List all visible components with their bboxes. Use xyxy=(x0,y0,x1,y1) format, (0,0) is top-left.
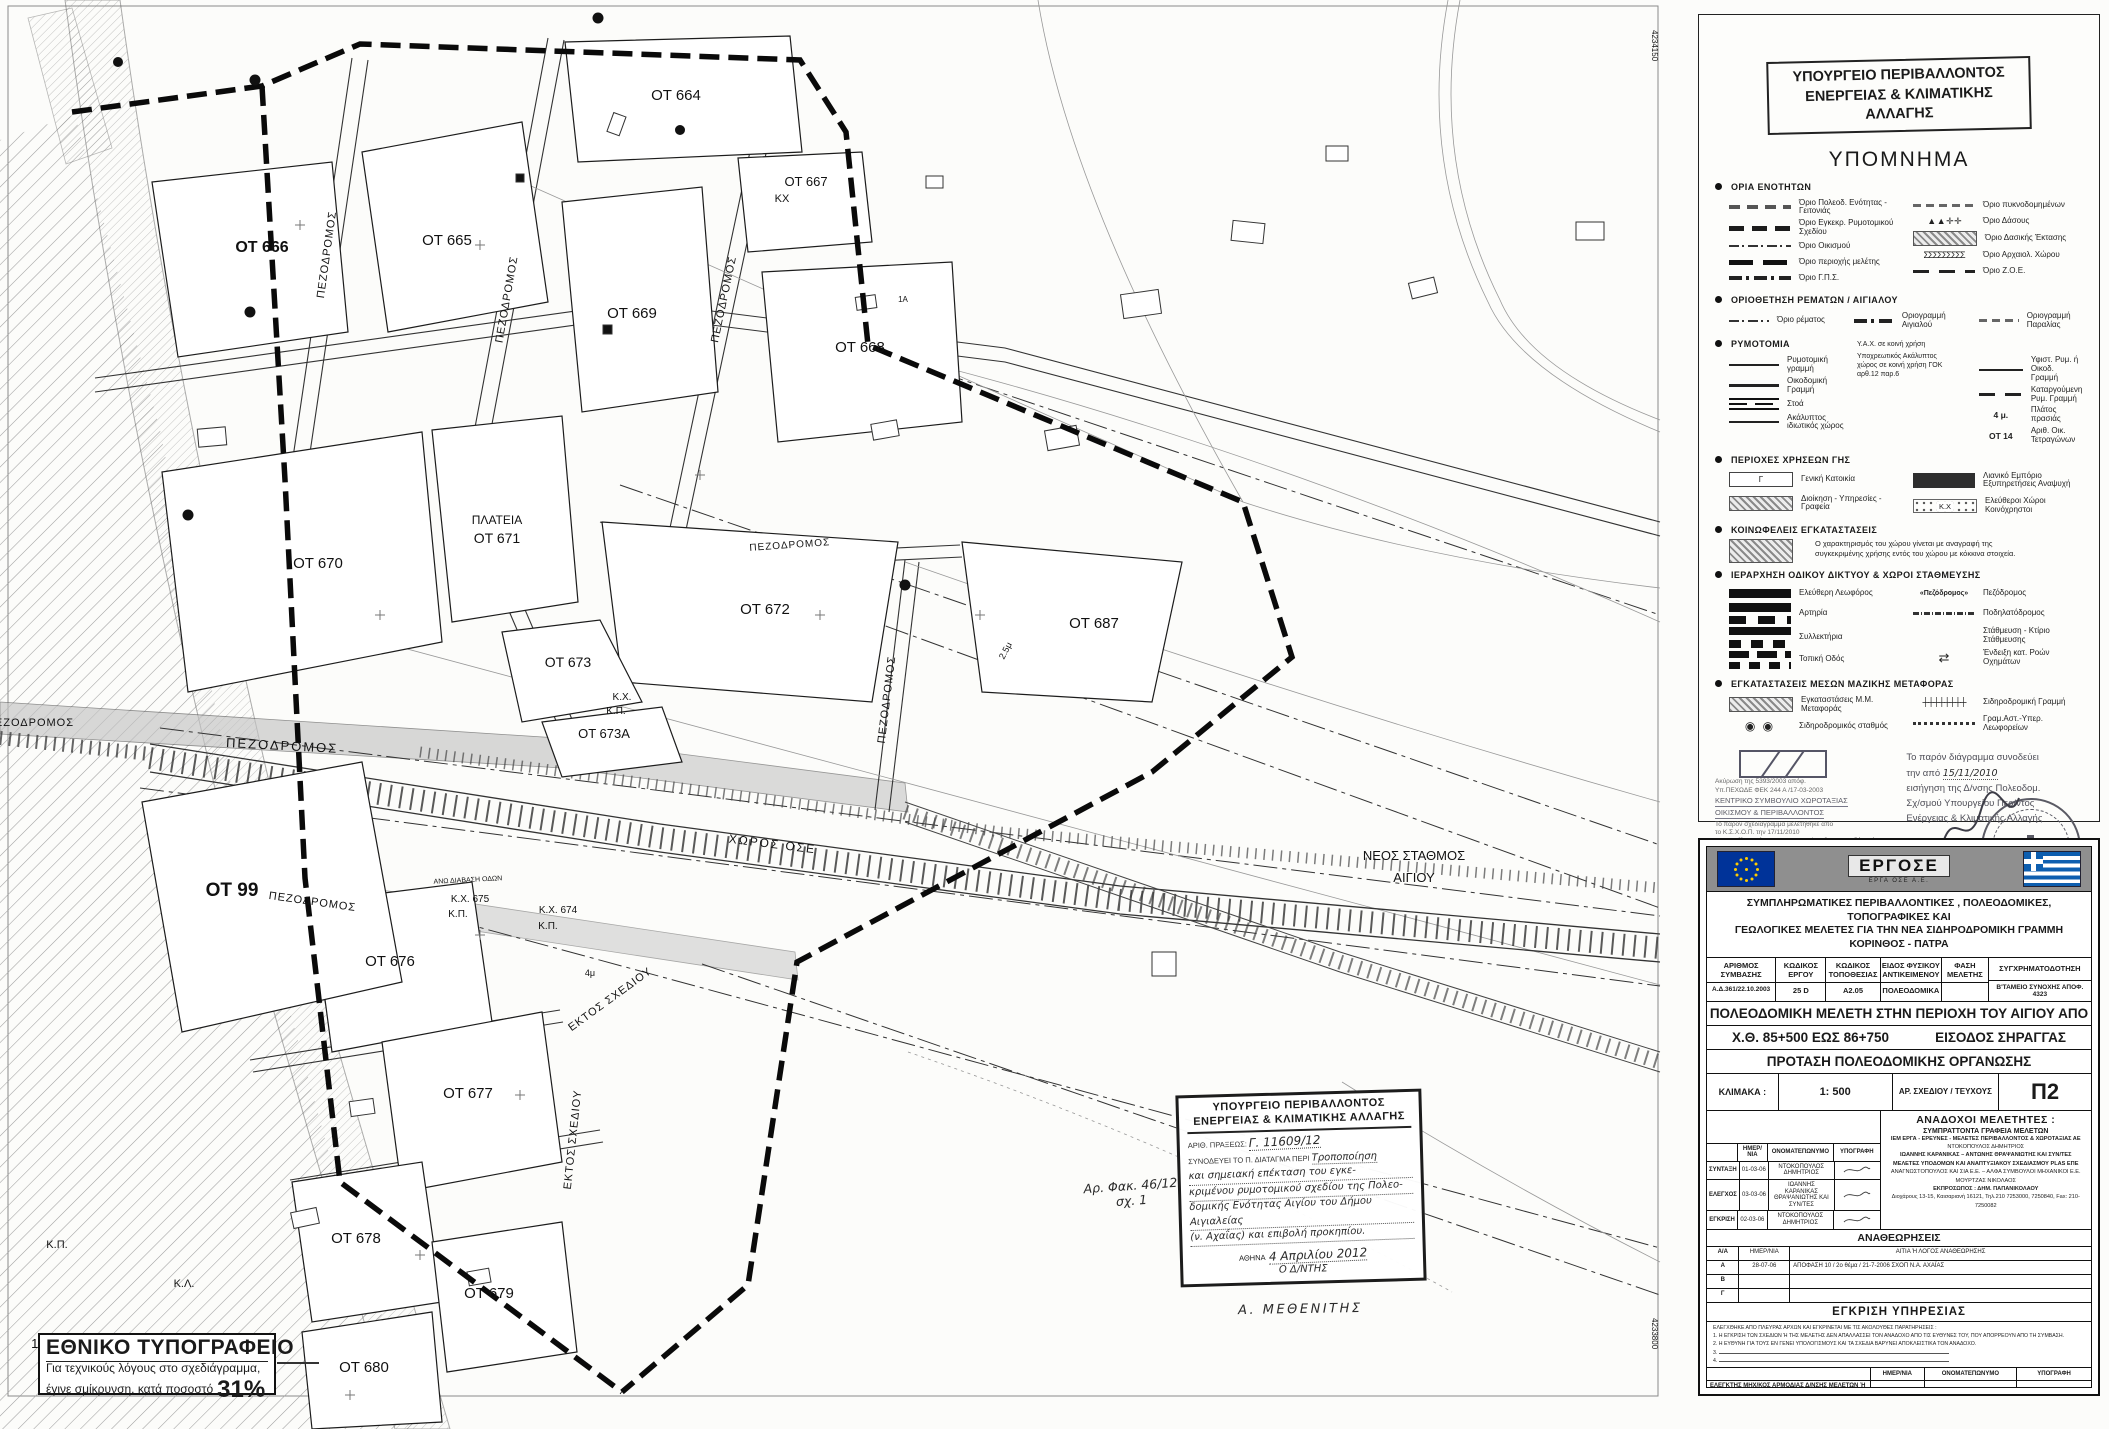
section-title: ΠΕΡΙΟΧΕΣ ΧΡΗΣΕΩΝ ΓΗΣ xyxy=(1731,455,1850,465)
legend-section-communal: ΚΟΙΝΩΦΕΛΕΙΣ ΕΓΚΑΤΑΣΤΑΣΕΙΣ Ο χαρακτηρισμό… xyxy=(1715,525,2083,563)
legend-item: Όριο Δάσους xyxy=(1983,217,2029,226)
col-value: Α.Δ.361/22.10.2003 xyxy=(1707,983,1775,1001)
legend-item: Εγκαταστάσεις Μ.Μ. Μεταφοράς xyxy=(1801,696,1899,714)
decree-subject-1: Τροποποίηση xyxy=(1312,1150,1378,1164)
legend-item: Ένδειξη κατ. Ροών Οχημάτων xyxy=(1983,649,2083,667)
appr-col-header: ΗΜΕΡ/ΝΙΑ xyxy=(1871,1368,1924,1380)
legend-item: Οικοδομική Γραμμή xyxy=(1787,377,1855,395)
eu-flag-icon xyxy=(1717,851,1775,887)
stamp-text: την από xyxy=(1906,768,1940,779)
rev-date: 28-07-06 xyxy=(1739,1261,1790,1274)
council-name2: ΟΙΚΙΣΜΟΥ & ΠΕΡΙΒΑΛΛΟΝΤΟΣ xyxy=(1715,807,1824,819)
yax-note: Υ.Α.Χ. σε κοινή χρήση xyxy=(1857,341,1947,350)
gok-note: Υποχρεωτικός Ακάλυπτος χώρος σε κοινή χρ… xyxy=(1857,353,1947,379)
legend-section-road-hierarchy: ΙΕΡΑΡΧΗΣΗ ΟΔΙΚΟΥ ΔΙΚΤΥΟΥ & ΧΩΡΟΙ ΣΤΑΘΜΕΥ… xyxy=(1715,570,2083,672)
legend-item: Όριο Γ.Π.Σ. xyxy=(1799,274,1839,283)
legend-item: Στοά xyxy=(1787,400,1804,409)
legend-item: Διοίκηση - Υπηρεσίες - Γραφεία xyxy=(1801,495,1899,513)
appr-name xyxy=(1925,1381,2018,1388)
legend-item: Ελεύθερη Λεωφόρος xyxy=(1799,589,1873,598)
col-header: ΚΩΔΙΚΟΣ ΕΡΓΟΥ xyxy=(1776,958,1825,983)
signature-squiggle xyxy=(1842,1215,1872,1225)
council-name1: ΚΕΝΤΡΙΚΟ ΣΥΜΒΟΥΛΙΟ ΧΩΡΟΤΑΞΙΑΣ xyxy=(1715,795,1848,807)
appr-col-header: ΟΝΟΜΑΤΕΠΩΝΥΜΟ xyxy=(1925,1368,2018,1380)
sig-name: ΝΤΟΚΟΠΟΥΛΟΣ ΔΗΜΗΤΡΙΟΣ xyxy=(1769,1162,1835,1179)
archaeological-line-icon: ΣΣΣΣΣΣΣΣΣ xyxy=(1913,250,1975,260)
bullet-icon xyxy=(1715,526,1722,533)
block-label: ΟΤ 664 xyxy=(651,87,701,104)
residence-letter: Γ xyxy=(1759,475,1763,484)
bullet-icon xyxy=(1715,183,1722,190)
bullet-icon xyxy=(1715,340,1722,347)
out-of-plan-label: ΕΚΤΟΣ ΣΧΕΔΙΟΥ xyxy=(562,1089,584,1190)
general-residence-icon: Γ xyxy=(1729,472,1793,487)
block-label: ΟΤ 679 xyxy=(464,1285,514,1302)
legend-item: Γραμ.Αστ.-Υπερ. Λεωφορείων xyxy=(1983,715,2083,733)
legend-title: ΥΠΟΜΝΗΜΑ xyxy=(1715,148,2083,172)
contract-table: ΑΡΙΘΜΟΣ ΣΥΜΒΑΣΗΣΑ.Δ.361/22.10.2003 ΚΩΔΙΚ… xyxy=(1707,958,2091,1002)
section-title: ΡΥΜΟΤΟΜΙΑ xyxy=(1731,339,1790,349)
legend-item: Όριο Εγκεκρ. Ρυμοτομικού Σχεδίου xyxy=(1799,219,1899,237)
arterial-icon xyxy=(1729,603,1791,624)
map: ΟΤ 664 ΟΤ 667 ΚΧ ΟΤ 666 ΟΤ 665 ΟΤ 669 ΟΤ… xyxy=(0,0,1668,1429)
block-number-symbol: ΟΤ 14 xyxy=(1979,431,2023,441)
leader-line xyxy=(277,1362,319,1364)
col-value: ΠΟΛΕΟΔΟΜΙΚΑ xyxy=(1881,983,1942,1001)
retail-icon xyxy=(1913,473,1975,488)
rev-date xyxy=(1739,1289,1790,1302)
handwritten-decree-note: ΥΠΟΥΡΓΕΙΟ ΠΕΡΙΒΑΛΛΟΝΤΟΣ ΕΝΕΡΓΕΙΑΣ & ΚΛΙΜ… xyxy=(1175,1089,1426,1288)
designers-subtitle: ΣΥΜΠΡΑΤΤΟΝΤΑ ΓΡΑΦΕΙΑ ΜΕΛΕΤΩΝ xyxy=(1885,1128,2088,1135)
legend-item: Υφιστ. Ρυμ. ή Οικοδ. Γραμμή xyxy=(2031,356,2083,382)
block-label: ΟΤ 666 xyxy=(235,239,288,256)
block-label: ΟΤ 687 xyxy=(1069,615,1119,632)
building-line-icon xyxy=(1729,384,1779,387)
designers-title: ΑΝΑΔΟΧΟΙ ΜΕΛΕΤΗΤΕΣ : xyxy=(1885,1114,2088,1126)
appr-role: ΕΛΕΓΚΤΗΣ ΜΗΧ/ΚΟΣ ΑΡΜΟΔΙΑΣ Δ/ΝΣΗΣ ΜΕΛΕΤΩΝ… xyxy=(1707,1381,1871,1388)
printer-line1: Για τεχνικούς λόγους στο σχεδιάγραμμα, xyxy=(46,1362,268,1376)
study-title-line1: ΠΟΛΕΟΔΟΜΙΚΗ ΜΕΛΕΤΗ ΣΤΗΝ ΠΕΡΙΟΧΗ ΤΟΥ ΑΙΓΙ… xyxy=(1707,1002,2091,1026)
legend-item: Συλλεκτήρια xyxy=(1799,633,1842,642)
col-header: ΚΩΔΙΚΟΣ ΤΟΠΟΘΕΣΙΑΣ xyxy=(1826,958,1879,983)
legend-item: Ακάλυπτος ιδιωτικός χώρος xyxy=(1787,414,1855,432)
block-label: ΟΤ 669 xyxy=(607,305,657,322)
legend-item: Σιδηροδρομική Γραμμή xyxy=(1983,698,2065,707)
kp-label: Κ.Π. xyxy=(448,909,467,920)
rev-id: Α xyxy=(1707,1261,1739,1274)
printer-title: ΕΘΝΙΚΟ ΤΥΠΟΓΡΑΦΕΙΟ xyxy=(46,1336,268,1362)
block-label: ΟΤ 673 xyxy=(545,654,592,670)
rev-id: Β xyxy=(1707,1275,1739,1288)
scale-row: ΚΛΙΜΑΚΑ : 1: 500 ΑΡ. ΣΧΕΔΙΟΥ / ΤΕΥΧΟΥΣ Π… xyxy=(1707,1074,2091,1111)
designer-representative: ΕΚΠΡΟΣΩΠΟΣ : ΔΗΜ. ΠΑΠΑΝΙΚΟΛΑΟΥ xyxy=(1885,1185,2088,1193)
grid-coordinate-bottom: 4233800 xyxy=(1650,1318,1659,1350)
out-of-plan-label: ΕΚΤΟΣ ΣΧΕΔΙΟΥ xyxy=(566,965,654,1034)
approval-intro: ΕΛΕΓΧΘΗΚΕ ΑΠΟ ΠΛΕΥΡΑΣ ΑΡΧΩΝ ΚΑΙ ΕΓΚΡΙΝΕΤ… xyxy=(1713,1324,2085,1332)
block-label: ΟΤ 667 xyxy=(784,174,827,189)
dimension-label: 4μ xyxy=(585,968,595,978)
ministry-header: ΥΠΟΥΡΓΕΙΟ ΠΕΡΙΒΑΛΛΟΝΤΟΣ ΕΝΕΡΓΕΙΑΣ & ΚΛΙΜ… xyxy=(1766,56,2032,135)
block-label: ΟΤ 676 xyxy=(365,953,415,970)
designer-line: ΙΩΑΝΝΗΣ ΚΑΡΑΝΙΚΑΣ – ΑΝΤΩΝΗΣ ΘΡΑΨΑΝΙΩΤΗΣ … xyxy=(1885,1151,2088,1159)
stamp-date: 15/11/2010 xyxy=(1943,768,1998,780)
street-label: ΠΕΖΟΔΡΟΜΟΣ xyxy=(0,717,74,729)
legend-item: Όριο πυκνοδομημένων xyxy=(1983,201,2065,210)
plateia-label: ΠΛΑΤΕΙΑ xyxy=(472,513,522,527)
stamp-text: Ακύρωση της 5393/2003 απόφ. xyxy=(1715,778,1806,785)
bike-lane-icon xyxy=(1913,612,1975,615)
legend-item: Πεζόδρομος xyxy=(1983,589,2026,598)
signature-squiggle xyxy=(1842,1165,1872,1175)
designer-line: ΙΕΜ ΕΡΓΑ - ΕΡΕΥΝΕΣ - ΜΕΛΕΤΕΣ ΠΕΡΙΒΑΛΛΟΝΤ… xyxy=(1885,1135,2088,1143)
greek-flag-icon xyxy=(2023,851,2081,887)
chainage-range: Χ.Θ. 85+500 ΕΩΣ 86+750 xyxy=(1732,1030,1889,1045)
private-open-space-icon xyxy=(1729,421,1779,423)
zoe-line-icon xyxy=(1913,270,1975,273)
legend-item: Όριο Αρχαιολ. Χώρου xyxy=(1983,251,2060,260)
block-label: ΟΤ 678 xyxy=(331,1230,381,1247)
section-title: ΟΡΙΟΘΕΤΗΣΗ ΡΕΜΑΤΩΝ / ΑΙΓΙΑΛΟΥ xyxy=(1731,295,1898,305)
arcade-icon xyxy=(1729,398,1779,410)
boundary-line-icon xyxy=(1729,205,1791,209)
sig-date: 03-03-06 xyxy=(1740,1180,1769,1210)
sheet-number-value: Π2 xyxy=(1999,1074,2091,1110)
legend-item: Αρτηρία xyxy=(1799,609,1827,618)
sig-date: 01-03-06 xyxy=(1740,1162,1769,1179)
approved-plan-line-icon xyxy=(1729,226,1791,231)
revisions-table: Α/ΑΗΜΕΡ/ΝΙΑΑΙΤΙΑ Ή ΛΟΓΟΣ ΑΝΑΘΕΩΡΗΣΗΣ Α28… xyxy=(1707,1247,2091,1303)
sig-date: 02-03-06 xyxy=(1738,1211,1768,1228)
sig-stage: ΣΥΝΤΑΞΗ xyxy=(1707,1162,1740,1179)
designers-block: ΑΝΑΔΟΧΟΙ ΜΕΛΕΤΗΤΕΣ : ΣΥΜΠΡΑΤΤΟΝΤΑ ΓΡΑΦΕΙ… xyxy=(1881,1111,2092,1229)
approval-note: 4. xyxy=(1713,1358,1717,1364)
study-area-line-icon xyxy=(1729,260,1791,265)
block-label: ΟΤ 665 xyxy=(422,232,472,249)
col-header: ΕΙΔΟΣ ΦΥΣΙΚΟΥ ΑΝΤΙΚΕΙΜΕΝΟΥ xyxy=(1881,958,1942,983)
traffic-flow-arrows-icon: ⇄ xyxy=(1913,650,1975,666)
legend-panel: ΥΠΟΥΡΓΕΙΟ ΠΕΡΙΒΑΛΛΟΝΤΟΣ ΕΝΕΡΓΕΙΑΣ & ΚΛΙΜ… xyxy=(1698,14,2100,822)
legend-item: Οριογραμμή Αιγιαλού xyxy=(1902,312,1965,330)
pedestrian-street-symbol: «Πεζόδρομος» xyxy=(1913,590,1975,597)
sheet-number-label: ΑΡ. ΣΧΕΔΙΟΥ / ΤΕΥΧΟΥΣ xyxy=(1893,1074,2000,1110)
approval-notes: ΕΛΕΓΧΘΗΚΕ ΑΠΟ ΠΛΕΥΡΑΣ ΑΡΧΩΝ ΚΑΙ ΕΓΚΡΙΝΕΤ… xyxy=(1707,1322,2091,1368)
block-label: ΟΤ 677 xyxy=(443,1085,493,1102)
sig-name: ΝΤΟΚΟΠΟΥΛΟΣ ΔΗΜΗΤΡΙΟΣ xyxy=(1768,1211,1834,1228)
section-title: ΟΡΙΑ ΕΝΟΤΗΤΩΝ xyxy=(1731,182,1811,192)
legend-item: Όριο ρέματος xyxy=(1777,316,1825,325)
sig-col-header: ΟΝΟΜΑΤΕΠΩΝΥΜΟ xyxy=(1768,1144,1834,1161)
section-title: ΚΟΙΝΩΦΕΛΕΙΣ ΕΓΚΑΤΑΣΤΑΣΕΙΣ xyxy=(1731,525,1877,535)
block-label: ΟΤ 670 xyxy=(293,555,343,572)
designer-line: ΑΝΑΓΝΩΣΤΟΠΟΥΛΟΣ ΚΑΙ ΣΙΑ Ε.Ε. – ΑΛΦΑ ΣΥΜΒ… xyxy=(1885,1168,2088,1176)
rev-id: Γ xyxy=(1707,1289,1739,1302)
dense-built-line-icon xyxy=(1913,204,1975,207)
sig-stage: ΕΛΕΓΧΟΣ xyxy=(1707,1180,1740,1210)
reduction-percent: 31% xyxy=(217,1376,265,1403)
transit-facility-icon xyxy=(1729,697,1793,712)
sig-col-header: ΥΠΟΓΡΑΦΗ xyxy=(1834,1144,1879,1161)
printer-line2: έγινε σμίκρυνση, κατά ποσοστό xyxy=(46,1382,213,1396)
existing-line-icon xyxy=(1979,369,2023,371)
block-label: ΟΤ 672 xyxy=(740,601,790,618)
approval-note: 2. Η ΕΥΘΥΝΗ ΓΙΑ ΤΟΥΣ ΕΝ ΓΕΝΕΙ ΥΠΟΛΟΓΙΣΜΟ… xyxy=(1713,1340,2085,1348)
designer-line: ΜΟΥΡΤΖΑΣ ΝΙΚΟΛΑΟΣ xyxy=(1885,1177,2088,1185)
bullet-icon xyxy=(1715,680,1722,687)
ergose-logo: ΕΡΓΟΣΕ xyxy=(1848,855,1950,877)
ministry-line2: ΕΝΕΡΓΕΙΑΣ & ΚΛΙΜΑΤΙΚΗΣ ΑΛΛΑΓΗΣ xyxy=(1773,83,2026,128)
kp-label: Κ.Π. xyxy=(606,706,625,717)
block-label: ΚΧ xyxy=(775,193,790,205)
communal-area-icon xyxy=(1729,539,1793,563)
administration-icon xyxy=(1729,496,1793,511)
local-road-icon xyxy=(1729,651,1791,669)
block-label: ΟΤ 99 xyxy=(206,880,259,901)
appr-col-header: ΥΠΟΓΡΑΦΗ xyxy=(2017,1368,2091,1380)
col-value xyxy=(1942,983,1987,1001)
kp-label: Κ.Π. xyxy=(46,1239,67,1251)
project-line2: ΓΕΩΛΟΓΙΚΕΣ ΜΕΛΕΤΕΣ ΓΙΑ ΤΗΝ ΝΕΑ ΣΙΔΗΡΟΔΡΟ… xyxy=(1713,924,2085,951)
legend-item: Τοπική Οδός xyxy=(1799,655,1844,664)
director-signature-name: Α. ΜΕΘΕΝΙΤΗΣ xyxy=(1238,1301,1363,1318)
legend-item: Λιανικό Εμπόριο Εξυπηρετήσεις Αναψυχή xyxy=(1983,472,2083,490)
bullet-icon xyxy=(1715,456,1722,463)
section-title: ΕΓΚΑΤΑΣΤΑΣΕΙΣ ΜΕΣΩΝ ΜΑΖΙΚΗΣ ΜΕΤΑΦΟΡΑΣ xyxy=(1731,679,1954,689)
grid-coordinate-top: 4234150 xyxy=(1650,30,1659,62)
sig-stage: ΕΓΚΡΙΣΗ xyxy=(1707,1211,1738,1228)
scale-label: ΚΛΙΜΑΚΑ : xyxy=(1707,1074,1779,1110)
rev-col-header: ΑΙΤΙΑ Ή ΛΟΓΟΣ ΑΝΑΘΕΩΡΗΣΗΣ xyxy=(1790,1247,2091,1260)
service-approval-title: ΕΓΚΡΙΣΗ ΥΠΗΡΕΣΙΑΣ xyxy=(1707,1303,2091,1322)
designer-line: ΜΕΛΕΤΕΣ ΥΠΟΔΟΜΩΝ ΚΑΙ ΑΝΑΠΤΥΞΙΑΚΟΥ ΣΧΕΔΙΑ… xyxy=(1885,1160,2088,1168)
proposal-title: ΠΡΟΤΑΣΗ ΠΟΛΕΟΔΟΜΙΚΗΣ ΟΡΓΑΝΩΣΗΣ xyxy=(1707,1050,2091,1074)
approval-note: 3. xyxy=(1713,1350,1717,1356)
rev-reason: ΑΠΟΦΑΣΗ 10 / 2ο θέμα / 21-7-2006 ΣΧΟΠ Ν.… xyxy=(1790,1261,2091,1274)
study-title-line2: Χ.Θ. 85+500 ΕΩΣ 86+750 ΕΙΣΟΔΟΣ ΣΗΡΑΓΓΑΣ xyxy=(1707,1026,2091,1050)
col-header: ΣΥΓΧΡΗΜΑΤΟΔΟΤΗΣΗ xyxy=(1989,958,2091,981)
stamp-text: το Κ.Σ.Χ.Ο.Π. την 17/11/2010 xyxy=(1715,829,1799,836)
dimension-label: 1Α xyxy=(898,295,908,304)
legend-section-land-uses: ΠΕΡΙΟΧΕΣ ΧΡΗΣΕΩΝ ΓΗΣ ΓΓενική Κατοικία Δι… xyxy=(1715,455,2083,518)
legend-item: Όριο Οικισμού xyxy=(1799,242,1850,251)
kx-label: Κ.Χ. 674 xyxy=(539,905,578,916)
legend-section-stream-shore: ΟΡΙΟΘΕΤΗΣΗ ΡΕΜΑΤΩΝ / ΑΙΓΙΑΛΟΥ Όριο ρέματ… xyxy=(1715,295,2083,333)
ergose-sub: ΕΡΓΑ ΟΣΕ Α.Ε. xyxy=(1848,878,1950,884)
col-value: Α2.05 xyxy=(1826,983,1879,1001)
designer-line: ΝΤΟΚΟΠΟΥΛΟΣ ΔΗΜΗΤΡΙΟΣ xyxy=(1885,1143,2088,1151)
legend-item: Όριο Ζ.Ο.Ε. xyxy=(1983,267,2025,276)
col-header: ΑΡΙΘΜΟΣ ΣΥΜΒΑΣΗΣ xyxy=(1707,958,1775,983)
revisions-title: ΑΝΑΘΕΩΡΗΣΕΙΣ xyxy=(1707,1230,2091,1247)
tunnel-entrance-label: ΕΙΣΟΔΟΣ ΣΗΡΑΓΓΑΣ xyxy=(1935,1030,2066,1045)
protocol-label: ΑΡΙΘ. ΠΡΑΞΕΩΣ: xyxy=(1188,1139,1247,1150)
bus-line-icon xyxy=(1913,722,1975,725)
col-value: Β'ΤΑΜΕΙΟ ΣΥΝΟΧΗΣ ΑΠΟΦ. 4323 xyxy=(1989,981,2091,1001)
open-space-icon: Κ.Χ xyxy=(1913,499,1977,513)
approval-table: ΗΜΕΡ/ΝΙΑΟΝΟΜΑΤΕΠΩΝΥΜΟΥΠΟΓΡΑΦΗ ΕΛΕΓΚΤΗΣ Μ… xyxy=(1707,1367,2091,1388)
beach-line-icon xyxy=(1979,319,2019,322)
kp-label: Κ.Π. xyxy=(538,921,557,932)
legend-item: Οριογραμμή Παραλίας xyxy=(2027,312,2083,330)
legend-item: Όριο Δασικής Έκτασης xyxy=(1985,234,2066,243)
stamp-text: Το παρόν σχεδιάγραμμα μελετήθηκε από xyxy=(1715,821,1833,828)
stamp-text: Το παρόν διάγραμμα συνοδεύει xyxy=(1906,750,2083,765)
block-label: ΟΤ 668 xyxy=(835,339,885,356)
legend-item: Ελεύθεροι Χώροι Κοινόχρηστοι xyxy=(1985,497,2083,515)
forest-area-icon xyxy=(1913,231,1977,246)
communal-note: Ο χαρακτηρισμός του χώρου γίνεται με ανα… xyxy=(1815,539,2025,559)
forest-boundary-icon: ▲ ▲ ✛ ✛ xyxy=(1913,216,1975,227)
sig-col-header: ΗΜΕΡ/ΝΙΑ xyxy=(1738,1144,1768,1161)
settlement-line-icon xyxy=(1729,245,1791,247)
section-title: ΙΕΡΑΡΧΗΣΗ ΟΔΙΚΟΥ ΔΙΚΤΥΟΥ & ΧΩΡΟΙ ΣΤΑΘΜΕΥ… xyxy=(1731,570,1981,580)
sig-name: ΙΩΑΝΝΗΣ ΚΑΡΑΝΙΚΑΣ ΘΡΑΨΑΝΙΩΤΗΣ ΚΑΙ ΣΥΝ/ΤΕ… xyxy=(1769,1180,1835,1210)
col-header: ΦΑΣΗ ΜΕΛΕΤΗΣ xyxy=(1942,958,1987,983)
scanned-plan-sheet: ΟΤ 664 ΟΤ 667 ΚΧ ΟΤ 666 ΟΤ 665 ΟΤ 669 ΟΤ… xyxy=(0,0,2109,1429)
designer-contact: Διοχάρους 13-15, Καισαριανή 16121, Τηλ.2… xyxy=(1885,1193,2088,1210)
legend-item: Ποδηλατόδρομος xyxy=(1983,609,2045,618)
drafting-signature-table: ΗΜΕΡ/ΝΙΑΟΝΟΜΑΤΕΠΩΝΥΜΟΥΠΟΓΡΑΦΗ ΣΥΝΤΑΞΗ01-… xyxy=(1707,1111,1881,1229)
kl-label: Κ.Λ. xyxy=(174,1278,195,1290)
kx-label: Κ.Χ. 675 xyxy=(451,894,490,905)
signature-squiggle xyxy=(1842,1190,1872,1200)
block-label: ΟΤ 671 xyxy=(474,530,521,546)
street-label: ΠΕΖΟΔΡΟΜΟΣ xyxy=(876,655,899,744)
block-label: ΟΤ 673Α xyxy=(578,726,630,741)
note-date-prefix: ΑΘΗΝΑ xyxy=(1239,1253,1266,1263)
kx-letters: Κ.Χ xyxy=(1937,502,1953,511)
bullet-icon xyxy=(1715,571,1722,578)
collector-icon xyxy=(1729,627,1791,648)
legend-item: Γενική Κατοικία xyxy=(1801,475,1855,484)
rev-reason xyxy=(1790,1275,2091,1288)
approval-note: 1. Η ΕΓΚΡΙΣΗ ΤΩΝ ΣΧΕΔΙΩΝ Ή ΤΗΣ ΜΕΛΕΤΗΣ Δ… xyxy=(1713,1332,2085,1340)
legend-item: Ρυμοτομική γραμμή xyxy=(1787,356,1855,374)
legend-item: Όριο Πολεοδ. Ενότητας - Γειτονιάς xyxy=(1799,199,1899,217)
legend-item: Όριο περιοχής μελέτης xyxy=(1799,258,1880,267)
accompanies-label: ΣΥΝΟΔΕΥΕΙ ΤΟ Π. ΔΙΑΤΑΓΜΑ ΠΕΡΙ xyxy=(1188,1153,1310,1165)
legend-section-mass-transit: ΕΓΚΑΤΑΣΤΑΣΕΙΣ ΜΕΣΩΝ ΜΑΖΙΚΗΣ ΜΕΤΑΦΟΡΑΣ Εγ… xyxy=(1715,679,2083,737)
protocol-value: Γ. 11609/12 xyxy=(1249,1132,1321,1150)
legend-item: Σιδηροδρομικός σταθμός xyxy=(1799,722,1888,731)
station-label: ΑΙΓΙΟΥ xyxy=(1393,870,1435,885)
rail-station-icon: ◉ ◉ xyxy=(1729,719,1791,733)
logo-band: ΕΡΓΟΣΕ ΕΡΓΑ ΟΣΕ Α.Ε. xyxy=(1707,847,2091,892)
legend-item: Καταργούμενη Ρυμ. Γραμμή xyxy=(2031,386,2083,404)
project-line1: ΣΥΜΠΛΗΡΩΜΑΤΙΚΕΣ ΠΕΡΙΒΑΛΛΟΝΤΙΚΕΣ , ΠΟΛΕΟΔ… xyxy=(1713,897,2085,924)
abolished-line-icon xyxy=(1979,393,2023,396)
ose-area-label: ΧΩΡΟΣ ΟΣΕ xyxy=(728,832,817,857)
street-plan-line-icon xyxy=(1729,364,1779,366)
legend-item: Αριθ. Οικ. Τετραγώνων xyxy=(2031,427,2083,445)
rev-col-header: Α/Α xyxy=(1707,1247,1739,1260)
project-title: ΣΥΜΠΛΗΡΩΜΑΤΙΚΕΣ ΠΕΡΙΒΑΛΛΟΝΤΙΚΕΣ , ΠΟΛΕΟΔ… xyxy=(1707,892,2091,958)
stamp-slash-box xyxy=(1739,750,1827,778)
block-label: ΟΤ 680 xyxy=(339,1359,389,1376)
rev-reason xyxy=(1790,1289,2091,1302)
railway-line-icon: ┼┼┼┼┼┼┼┼ xyxy=(1913,697,1975,707)
legend-section-unit-boundaries: ΟΡΙΑ ΕΝΟΤΗΤΩΝ Όριο Πολεοδ. Ενότητας - Γε… xyxy=(1715,182,2083,288)
setback-width-symbol: 4 μ. xyxy=(1979,410,2023,420)
legend-section-street-plan: ΡΥΜΟΤΟΜΙΑ Υ.Α.Χ. σε κοινή χρήση Υποχρεωτ… xyxy=(1715,339,2083,447)
gps-line-icon xyxy=(1729,276,1791,280)
scale-value: 1: 500 xyxy=(1779,1074,1893,1110)
legend-item: Πλάτος πρασιάς xyxy=(2031,406,2083,424)
rev-date xyxy=(1739,1275,1790,1288)
freeway-icon xyxy=(1729,589,1791,598)
title-block: ΕΡΓΟΣΕ ΕΡΓΑ ΟΣΕ Α.Ε. ΣΥΜΠΛΗΡΩΜΑΤΙΚΕΣ ΠΕΡ… xyxy=(1698,838,2100,1396)
national-printing-office-note: ΕΘΝΙΚΟ ΤΥΠΟΓΡΑΦΕΙΟ Για τεχνικούς λόγους … xyxy=(38,1333,276,1395)
kx-label: Κ.Χ. xyxy=(613,692,632,703)
stamp-text: Υπ.ΠΕΧΩΔΕ ΦΕΚ 244 Α /17-03-2003 xyxy=(1715,787,1823,794)
bullet-icon xyxy=(1715,296,1722,303)
station-label: ΝΕΟΣ ΣΤΑΘΜΟΣ xyxy=(1363,848,1465,863)
rev-col-header: ΗΜΕΡ/ΝΙΑ xyxy=(1739,1247,1790,1260)
shoreline-icon xyxy=(1854,319,1894,323)
stream-line-icon xyxy=(1729,320,1769,322)
col-value: 25 D xyxy=(1776,983,1825,1001)
legend-item: Στάθμευση - Κτίριο Στάθμευσης xyxy=(1983,627,2083,645)
